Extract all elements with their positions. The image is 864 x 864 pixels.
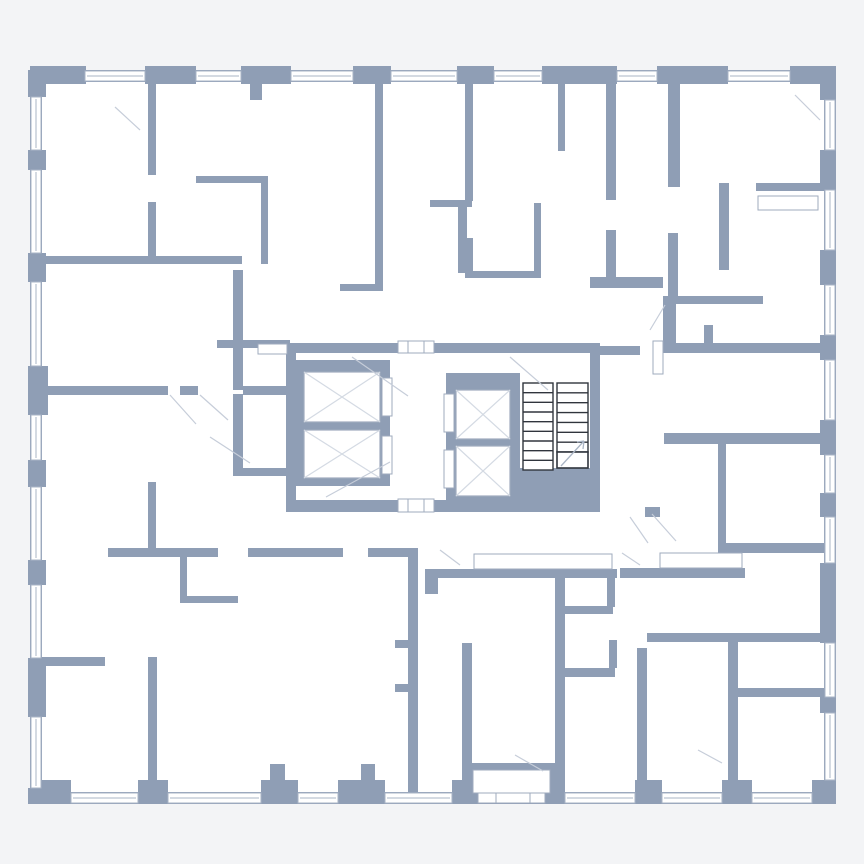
wall-c9: [663, 296, 763, 304]
pier-left-7: [28, 788, 46, 804]
pier-left-4: [28, 460, 46, 487]
wall-c6: [719, 183, 729, 270]
wall-h2: [607, 577, 615, 607]
stair-landing: [520, 468, 600, 512]
floor-plan-svg: [0, 0, 864, 864]
wall-a7: [340, 284, 383, 291]
wall-f5: [180, 596, 238, 603]
wall-a5: [261, 176, 268, 264]
core-wall-bottom-left: [286, 500, 398, 512]
wall-g5: [425, 569, 617, 578]
wall-h4: [609, 640, 617, 668]
builtin-box-3: [758, 196, 818, 210]
builtin-box-4: [258, 344, 287, 354]
pier-top-4: [457, 66, 494, 84]
wall-e3: [243, 386, 288, 395]
pier-top-6: [657, 66, 728, 84]
wall-g4: [408, 548, 418, 793]
pier-right-8: [820, 780, 836, 804]
wall-f1: [42, 657, 105, 666]
wall-h7: [645, 507, 660, 517]
wall-h3: [560, 668, 615, 677]
wall-d2: [663, 343, 824, 353]
wall-h5: [395, 640, 417, 648]
wall-b3: [430, 200, 472, 207]
core-wall-top-left: [286, 343, 398, 353]
wall-d1: [600, 346, 640, 355]
wall-c7: [668, 233, 678, 303]
wall-e2: [180, 386, 198, 395]
wall-c1: [606, 80, 616, 200]
wall-d5: [718, 444, 726, 543]
wall-f2: [148, 657, 157, 792]
pier-right-0: [820, 70, 836, 100]
wall-h6: [395, 684, 417, 692]
pier-top-1: [145, 66, 196, 84]
wall-c2: [606, 230, 616, 277]
builtin-box-2: [660, 553, 742, 568]
elevator-door-2: [382, 436, 392, 474]
entrance-door-opening: [478, 793, 545, 803]
elevator-door-4: [444, 450, 454, 488]
pier-top-5: [542, 66, 617, 84]
wall-e5: [233, 270, 243, 390]
wall-g2: [248, 548, 343, 557]
wall-d3: [704, 325, 713, 345]
wall-h9: [270, 764, 285, 792]
wall-d6: [718, 543, 824, 553]
wall-c5: [756, 183, 824, 191]
wall-d8: [647, 633, 824, 642]
pier-right-5: [820, 493, 836, 517]
wall-b7: [558, 83, 565, 151]
wall-h10: [361, 764, 375, 792]
wall-a6: [375, 83, 383, 290]
wall-g1: [108, 548, 218, 557]
pier-left-6: [28, 658, 46, 717]
wall-h1: [560, 606, 613, 614]
wall-b4: [458, 207, 467, 273]
pier-right-6: [820, 563, 836, 643]
pier-top-2: [241, 66, 291, 84]
stair-flight-left: [523, 383, 553, 470]
vestibule-inner: [473, 770, 550, 793]
page-background: [0, 0, 864, 864]
wall-a3: [42, 256, 242, 264]
wall-b5: [465, 271, 541, 278]
core-wall-top-right: [434, 343, 600, 353]
wall-e1: [42, 386, 168, 395]
wall-d10: [728, 642, 738, 793]
wall-b6: [534, 203, 541, 278]
pier-top-3: [353, 66, 391, 84]
wall-a2: [148, 202, 156, 264]
wall-c3: [590, 277, 663, 288]
wall-c8: [663, 296, 676, 350]
wall-e7: [233, 468, 303, 476]
elevator-door-3: [444, 394, 454, 432]
wall-b1: [465, 83, 473, 201]
door-leaf-1: [653, 341, 663, 374]
pier-left-5: [28, 560, 46, 585]
pier-left-1: [28, 150, 46, 170]
wall-h8: [250, 82, 262, 100]
lobby-door-bottom: [398, 499, 434, 512]
builtin-box-1: [474, 554, 612, 569]
wall-a1: [148, 83, 156, 175]
wall-c4: [668, 83, 680, 187]
wall-g6: [425, 569, 438, 594]
pier-right-2: [820, 250, 836, 285]
wall-d4: [664, 433, 824, 444]
wall-a4: [196, 176, 268, 183]
wall-d7: [620, 568, 745, 578]
pier-left-0: [28, 70, 46, 97]
pier-right-7: [820, 697, 836, 713]
wall-g3: [368, 548, 408, 557]
wall-d11: [732, 688, 824, 697]
wall-f3: [148, 482, 156, 548]
lobby-door-top: [398, 341, 434, 353]
wall-d9: [637, 648, 647, 793]
